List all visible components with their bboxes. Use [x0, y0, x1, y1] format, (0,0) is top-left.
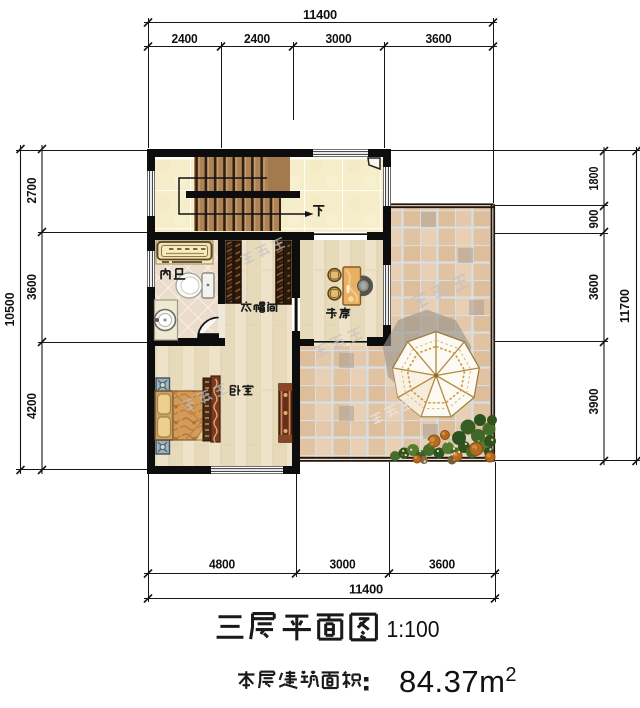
svg-text:3600: 3600 — [25, 274, 39, 300]
svg-text:900: 900 — [587, 209, 601, 228]
svg-text:11700: 11700 — [618, 289, 632, 323]
svg-text:4800: 4800 — [209, 558, 235, 572]
svg-text:3600: 3600 — [426, 32, 452, 46]
svg-text:2700: 2700 — [25, 177, 39, 203]
svg-text:3600: 3600 — [429, 558, 455, 572]
svg-text:2400: 2400 — [172, 32, 198, 46]
svg-text:11400: 11400 — [303, 8, 337, 22]
svg-text:3900: 3900 — [587, 388, 601, 414]
svg-text:1800: 1800 — [587, 166, 601, 190]
svg-text:3000: 3000 — [326, 32, 352, 46]
svg-text:11400: 11400 — [349, 583, 383, 597]
svg-text:3600: 3600 — [587, 274, 601, 300]
svg-text:4200: 4200 — [25, 393, 39, 419]
svg-text:84.37m2: 84.37m2 — [399, 664, 517, 699]
svg-text:2400: 2400 — [244, 32, 270, 46]
svg-text:3000: 3000 — [330, 558, 356, 572]
svg-text:1:100: 1:100 — [387, 616, 440, 642]
svg-text:10500: 10500 — [3, 292, 17, 326]
